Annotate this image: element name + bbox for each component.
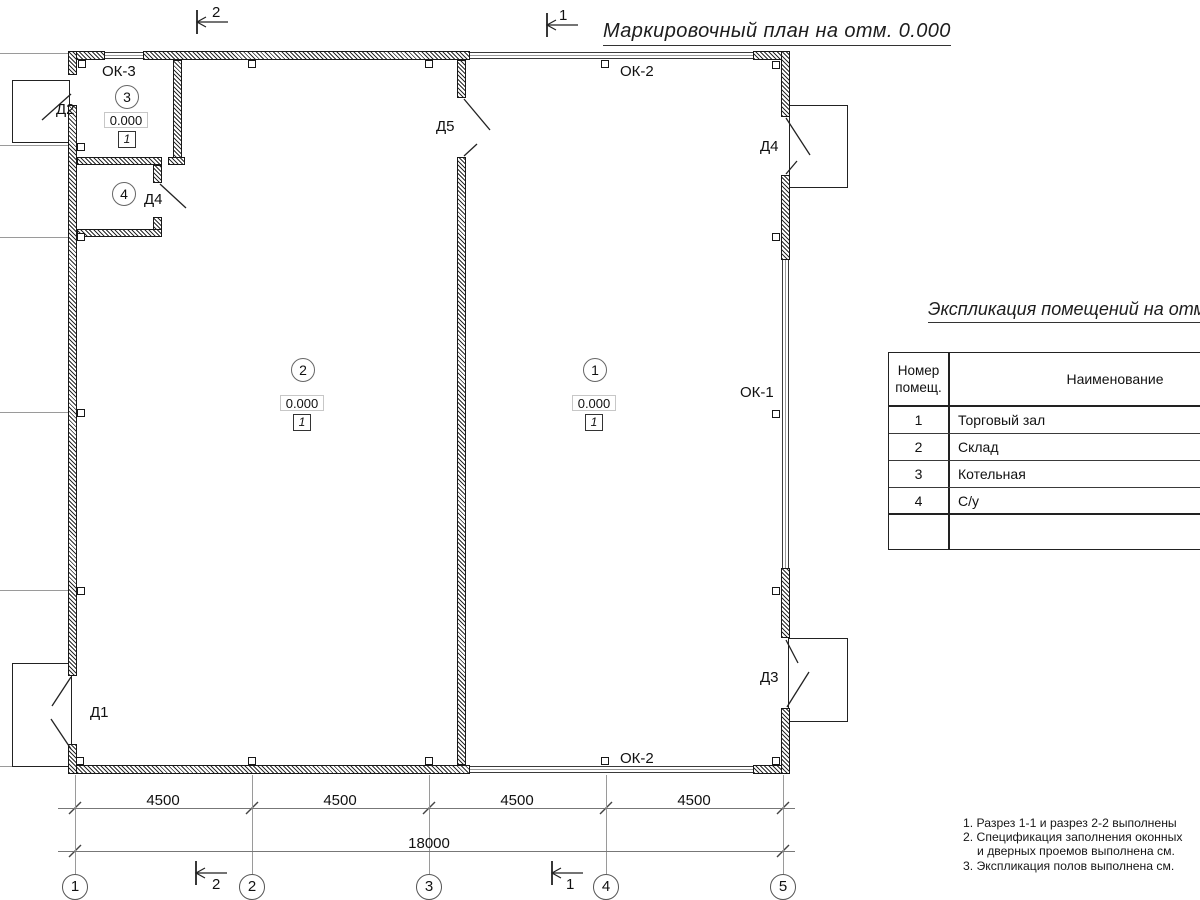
section-mark-2-bottom: 2 xyxy=(212,876,220,893)
table-row: 1 Торговый зал xyxy=(889,407,1200,434)
extension-line xyxy=(429,775,430,874)
room-elevation-2: 0.000 xyxy=(280,395,324,411)
note-line: 3. Экспликация полов выполнена см. xyxy=(963,859,1174,873)
section-mark-2-top: 2 xyxy=(212,4,220,21)
dimension-value: 4500 xyxy=(323,792,356,809)
window-label-ok1: ОК-1 xyxy=(740,384,774,401)
door-label-d4-inner: Д4 xyxy=(144,191,163,208)
room-elevation-1: 0.000 xyxy=(572,395,616,411)
dimension-total-value: 18000 xyxy=(408,835,450,852)
dimension-value: 4500 xyxy=(500,792,533,809)
extension-line xyxy=(252,775,253,874)
grid-bubble-4: 4 xyxy=(593,874,619,900)
note-line: 1. Разрез 1-1 и разрез 2-2 выполнены xyxy=(963,816,1177,830)
legend-table: Номер помещ. Наименование 1 Торговый зал… xyxy=(888,352,1200,550)
grid-bubble-2: 2 xyxy=(239,874,265,900)
door-label-d5: Д5 xyxy=(436,118,455,135)
table-row: 4 С/у xyxy=(889,488,1200,515)
door-label-d4-right: Д4 xyxy=(760,138,779,155)
room-elevation-3: 0.000 xyxy=(104,112,148,128)
floor-plan-drawing: Маркировочный план на отм. 0.000 xyxy=(0,0,1200,900)
extension-line xyxy=(606,775,607,874)
door-label-d2: Д2 xyxy=(56,101,75,118)
section-mark-1-bottom: 1 xyxy=(566,876,574,893)
dimension-value: 4500 xyxy=(146,792,179,809)
table-header-room-number: Номер помещ. xyxy=(889,362,948,396)
extension-line xyxy=(75,775,76,874)
room-number-1: 1 xyxy=(583,358,607,382)
section-mark-1-top: 1 xyxy=(559,7,567,24)
grid-bubble-1: 1 xyxy=(62,874,88,900)
room-number-2: 2 xyxy=(291,358,315,382)
room-number-4: 4 xyxy=(112,182,136,206)
note-line: и дверных проемов выполнена см. xyxy=(977,844,1175,858)
legend-table-title: Экспликация помещений на отм. 0.000 xyxy=(928,299,1200,323)
table-row-empty xyxy=(889,517,1200,547)
grid-bubble-3: 3 xyxy=(416,874,442,900)
room-number-3: 3 xyxy=(115,85,139,109)
table-row: 2 Склад xyxy=(889,434,1200,461)
table-header-name: Наименование xyxy=(950,371,1200,387)
table-row: 3 Котельная xyxy=(889,461,1200,488)
window-label-ok2-bottom: ОК-2 xyxy=(620,750,654,767)
room-floor-type-1: 1 xyxy=(585,414,603,431)
grid-bubble-5: 5 xyxy=(770,874,796,900)
window-label-ok3: ОК-3 xyxy=(102,63,136,80)
window-label-ok2-top: ОК-2 xyxy=(620,63,654,80)
note-line: 2. Спецификация заполнения оконных xyxy=(963,830,1182,844)
room-floor-type-2: 1 xyxy=(293,414,311,431)
door-label-d1: Д1 xyxy=(90,704,109,721)
room-floor-type-3: 1 xyxy=(118,131,136,148)
dimension-value: 4500 xyxy=(677,792,710,809)
extension-line xyxy=(783,775,784,874)
section-arrow-icon xyxy=(196,10,583,885)
door-label-d3: Д3 xyxy=(760,669,779,686)
table-header-row: Номер помещ. Наименование xyxy=(889,353,1200,407)
